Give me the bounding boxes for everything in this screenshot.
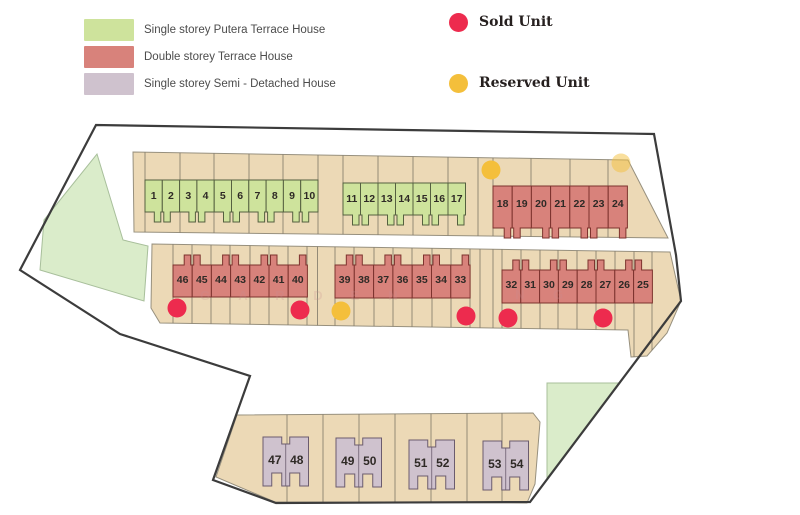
legend-item-label: Double storey Terrace House xyxy=(144,51,293,63)
lot-3-number: 3 xyxy=(185,190,191,202)
lot-15-number: 15 xyxy=(416,193,428,205)
lot-9-number: 9 xyxy=(289,190,295,202)
lot-18-number: 18 xyxy=(497,198,509,210)
lot-24-number: 24 xyxy=(612,198,624,210)
lot-35-number: 35 xyxy=(416,274,428,286)
lot-50-number: 50 xyxy=(363,454,377,468)
lot-45-number: 45 xyxy=(196,274,208,286)
lot-8-number: 8 xyxy=(272,190,278,202)
lot-1-number: 1 xyxy=(151,190,157,202)
legend-item-semid: Single storey Semi - Detached House xyxy=(84,73,336,95)
lot-10-number: 10 xyxy=(304,190,316,202)
sold-marker xyxy=(168,299,187,318)
watermark-letter: E xyxy=(351,288,360,303)
lot-46-number: 46 xyxy=(177,274,189,286)
lot-42-number: 42 xyxy=(254,274,266,286)
sold-marker xyxy=(499,309,518,328)
lot-7-number: 7 xyxy=(255,190,261,202)
lot-44-number: 44 xyxy=(215,274,227,286)
legend-housing-types: Single storey Putera Terrace House Doubl… xyxy=(84,19,336,100)
semid-swatch-icon xyxy=(84,73,134,95)
legend-item-label: Sold Unit xyxy=(479,14,553,30)
legend-item-sold: Sold Unit xyxy=(449,11,590,33)
lot-6-number: 6 xyxy=(237,190,243,202)
lot-34-number: 34 xyxy=(435,274,447,286)
watermark-letter: G xyxy=(553,287,563,302)
watermark-letter: R xyxy=(275,288,285,303)
lot-41-number: 41 xyxy=(273,274,285,286)
reserved-marker xyxy=(612,154,631,173)
reserved-dot-icon xyxy=(449,74,468,93)
lot-14-number: 14 xyxy=(398,193,410,205)
legend-item-label: Reserved Unit xyxy=(479,75,590,91)
legend-item-terrace: Double storey Terrace House xyxy=(84,46,336,68)
watermark-letter: A xyxy=(238,288,248,303)
sold-marker xyxy=(291,301,310,320)
lot-49-number: 49 xyxy=(341,454,355,468)
lot-40-number: 40 xyxy=(292,274,304,286)
lot-33-number: 33 xyxy=(455,274,467,286)
lot-36-number: 36 xyxy=(397,274,409,286)
legend-unit-status: Sold Unit Reserved Unit xyxy=(449,11,590,133)
putera-swatch-icon xyxy=(84,19,134,41)
lot-38-number: 38 xyxy=(358,274,370,286)
lot-47-number: 47 xyxy=(268,453,282,467)
lot-12-number: 12 xyxy=(363,193,375,205)
site-plan-page: 1234567891011121314151617181920212223244… xyxy=(0,0,800,515)
lot-25-number: 25 xyxy=(637,279,649,291)
sold-dot-icon xyxy=(449,13,468,32)
lot-39-number: 39 xyxy=(339,274,351,286)
lot-29-number: 29 xyxy=(562,279,574,291)
lot-20-number: 20 xyxy=(535,198,547,210)
lot-2-number: 2 xyxy=(168,190,174,202)
lot-13-number: 13 xyxy=(381,193,393,205)
lot-51-number: 51 xyxy=(414,456,428,470)
lot-43-number: 43 xyxy=(234,274,246,286)
lot-5-number: 5 xyxy=(220,190,226,202)
lot-17-number: 17 xyxy=(451,193,463,205)
legend-item-putera: Single storey Putera Terrace House xyxy=(84,19,336,41)
reserved-marker xyxy=(332,302,351,321)
reserved-marker xyxy=(482,161,501,180)
watermark-letter: N xyxy=(515,287,524,302)
lot-22-number: 22 xyxy=(574,198,586,210)
lot-21-number: 21 xyxy=(554,198,566,210)
lot-37-number: 37 xyxy=(377,274,389,286)
lot-4-number: 4 xyxy=(203,190,209,202)
lot-19-number: 19 xyxy=(516,198,528,210)
legend-item-label: Single storey Semi - Detached House xyxy=(144,78,336,90)
watermark-letter: G xyxy=(200,288,210,303)
lot-48-number: 48 xyxy=(290,453,304,467)
lot-16-number: 16 xyxy=(433,193,445,205)
lot-52-number: 52 xyxy=(436,456,450,470)
lot-28-number: 28 xyxy=(581,279,593,291)
legend-item-reserved: Reserved Unit xyxy=(449,72,590,94)
terrace-swatch-icon xyxy=(84,46,134,68)
legend-item-label: Single storey Putera Terrace House xyxy=(144,24,325,36)
lot-54-number: 54 xyxy=(510,457,524,471)
sold-marker xyxy=(594,309,613,328)
lot-53-number: 53 xyxy=(488,457,502,471)
lot-26-number: 26 xyxy=(618,279,630,291)
lot-31-number: 31 xyxy=(524,279,536,291)
lot-11-number: 11 xyxy=(346,193,357,205)
open-space-west xyxy=(40,154,148,301)
lot-23-number: 23 xyxy=(593,198,605,210)
lot-27-number: 27 xyxy=(600,279,612,291)
watermark-letter: N xyxy=(388,288,397,303)
watermark-letter: D xyxy=(313,288,322,303)
sold-marker xyxy=(457,307,476,326)
